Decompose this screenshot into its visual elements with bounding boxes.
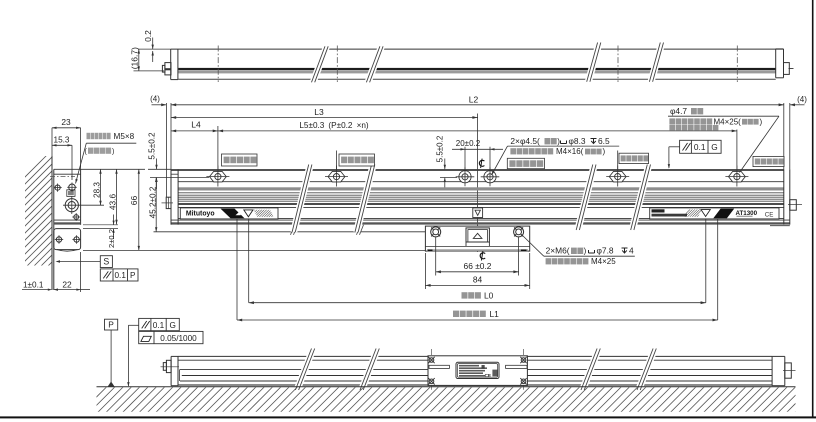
svg-text:P: P bbox=[130, 271, 136, 280]
svg-text:): ) bbox=[584, 247, 587, 256]
svg-text:(4): (4) bbox=[797, 95, 807, 104]
svg-text:0.1: 0.1 bbox=[153, 321, 165, 330]
svg-text:): ) bbox=[603, 147, 606, 156]
svg-text:CE: CE bbox=[765, 211, 774, 218]
svg-text:2±0.2: 2±0.2 bbox=[107, 229, 116, 248]
svg-text:L0: L0 bbox=[484, 291, 494, 301]
svg-text:84: 84 bbox=[473, 275, 483, 285]
svg-text:43.6: 43.6 bbox=[107, 194, 117, 211]
svg-text:28.3: 28.3 bbox=[92, 182, 101, 198]
svg-text:66 ±0.2: 66 ±0.2 bbox=[464, 261, 492, 271]
svg-text:Mitutoyo: Mitutoyo bbox=[186, 211, 215, 218]
svg-text:5.5±0.2: 5.5±0.2 bbox=[147, 132, 156, 160]
svg-text:G: G bbox=[711, 142, 717, 152]
svg-text:(4): (4) bbox=[150, 95, 160, 104]
svg-text:22: 22 bbox=[62, 279, 72, 289]
svg-text:23: 23 bbox=[61, 117, 71, 127]
svg-text:): ) bbox=[112, 149, 114, 156]
svg-text:M4×25: M4×25 bbox=[591, 257, 616, 266]
svg-text:CE: CE bbox=[485, 373, 491, 378]
svg-text:5.5±0.2: 5.5±0.2 bbox=[435, 135, 444, 162]
svg-text:0.1: 0.1 bbox=[115, 271, 127, 280]
svg-text:): ) bbox=[557, 137, 560, 146]
svg-text:66: 66 bbox=[129, 196, 139, 206]
svg-text:L2: L2 bbox=[469, 94, 479, 104]
svg-text:(16.7): (16.7) bbox=[130, 47, 140, 69]
svg-text:0.1: 0.1 bbox=[694, 142, 706, 152]
svg-text:M4×16(: M4×16( bbox=[556, 147, 584, 156]
svg-text:L3: L3 bbox=[314, 107, 324, 117]
svg-text:45.2±0.2: 45.2±0.2 bbox=[149, 186, 158, 218]
svg-text:φ4.7: φ4.7 bbox=[670, 106, 687, 116]
svg-text:2×M6(: 2×M6( bbox=[546, 246, 570, 256]
svg-text:P: P bbox=[108, 320, 114, 330]
svg-text:G: G bbox=[170, 321, 176, 330]
svg-text:φ8.3: φ8.3 bbox=[569, 136, 586, 146]
svg-text:20±0.2: 20±0.2 bbox=[456, 139, 481, 148]
svg-text:L5±0.3 (P±0.2 ×n): L5±0.3 (P±0.2 ×n) bbox=[299, 121, 369, 130]
svg-text:2×φ4.5(: 2×φ4.5( bbox=[510, 136, 540, 146]
svg-text:1±0.1: 1±0.1 bbox=[23, 281, 44, 290]
svg-text:15.3: 15.3 bbox=[54, 136, 70, 145]
svg-text:4: 4 bbox=[629, 246, 634, 256]
svg-text:L4: L4 bbox=[191, 120, 201, 130]
svg-text:): ) bbox=[760, 117, 763, 126]
svg-text:L1: L1 bbox=[490, 309, 500, 319]
svg-text:6.5: 6.5 bbox=[598, 136, 610, 146]
svg-text:φ7.8: φ7.8 bbox=[597, 246, 614, 256]
svg-text:S: S bbox=[103, 257, 109, 267]
svg-text:0.2: 0.2 bbox=[143, 30, 153, 42]
svg-text:M5×8: M5×8 bbox=[114, 132, 135, 141]
svg-text:0.05/1000: 0.05/1000 bbox=[160, 334, 197, 343]
